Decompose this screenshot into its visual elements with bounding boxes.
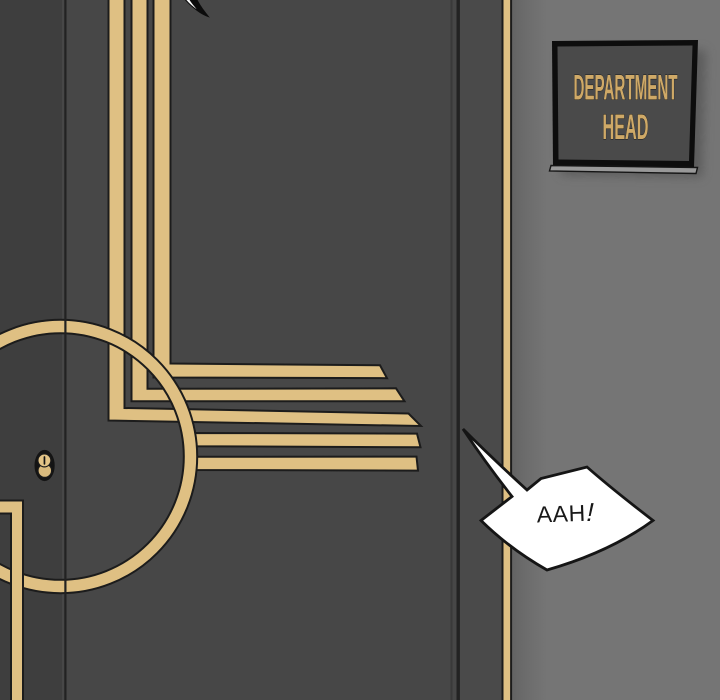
svg-text:HEAD: HEAD	[603, 108, 649, 147]
svg-text:AAH: AAH	[536, 500, 586, 528]
svg-text:DEPARTMENT: DEPARTMENT	[574, 69, 678, 108]
